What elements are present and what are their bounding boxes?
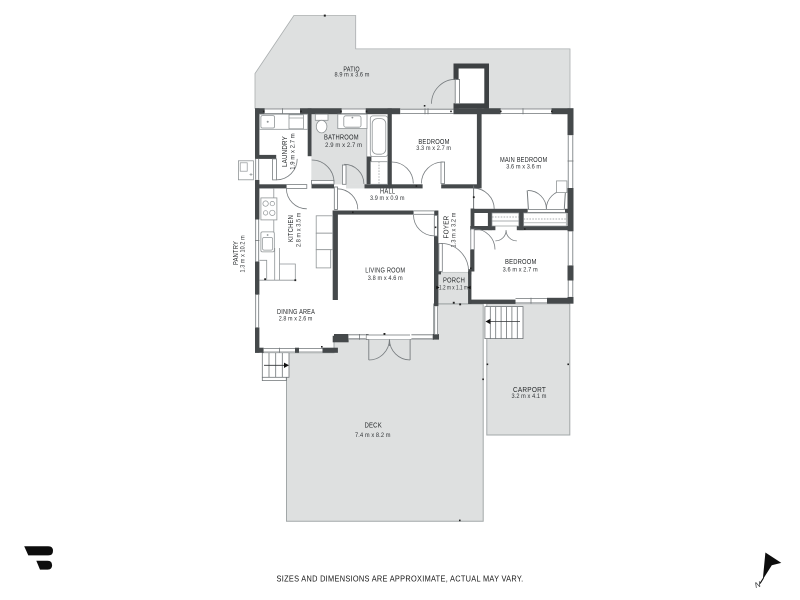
svg-text:BEDROOM: BEDROOM [505, 257, 537, 266]
svg-text:LAUNDRY: LAUNDRY [280, 136, 289, 167]
svg-text:SIZES AND DIMENSIONS ARE APPRO: SIZES AND DIMENSIONS ARE APPROXIMATE, AC… [277, 574, 524, 584]
svg-text:1.2 m x 1.1 m: 1.2 m x 1.1 m [439, 285, 468, 292]
svg-text:3.3 m x 2.7 m: 3.3 m x 2.7 m [416, 145, 451, 152]
svg-text:3.8 m x 4.6 m: 3.8 m x 4.6 m [368, 275, 403, 282]
svg-text:PANTRY: PANTRY [231, 241, 240, 265]
svg-text:FOYER: FOYER [441, 216, 450, 239]
svg-text:N: N [754, 580, 762, 590]
svg-text:1.3 m x 3.2 m: 1.3 m x 3.2 m [451, 213, 458, 248]
svg-text:7.4 m x 8.2 m: 7.4 m x 8.2 m [355, 432, 391, 439]
svg-text:3.6 m x 2.7 m: 3.6 m x 2.7 m [503, 267, 538, 274]
svg-text:3.6 m x 3.6 m: 3.6 m x 3.6 m [506, 164, 541, 171]
svg-text:3.2 m x 4.1 m: 3.2 m x 4.1 m [512, 393, 547, 400]
svg-text:8.9 m x 3.6 m: 8.9 m x 3.6 m [335, 72, 370, 79]
svg-text:2.9 m x 2.7 m: 2.9 m x 2.7 m [325, 142, 362, 149]
svg-text:PORCH: PORCH [443, 276, 465, 285]
svg-text:LIVING ROOM: LIVING ROOM [365, 266, 405, 275]
svg-text:1.9 m x 2.7 m: 1.9 m x 2.7 m [290, 133, 297, 170]
svg-text:2.8 m x 3.5 m: 2.8 m x 3.5 m [296, 213, 303, 248]
svg-text:DECK: DECK [364, 421, 382, 430]
svg-text:BATHROOM: BATHROOM [324, 132, 359, 141]
svg-text:KITCHEN: KITCHEN [286, 215, 295, 242]
svg-text:1.3 m x 10.2 m: 1.3 m x 10.2 m [240, 235, 247, 272]
svg-text:2.8 m x 2.6 m: 2.8 m x 2.6 m [279, 315, 313, 322]
svg-text:3.9 m x 0.9 m: 3.9 m x 0.9 m [370, 195, 405, 202]
svg-text:HALL: HALL [380, 186, 395, 195]
